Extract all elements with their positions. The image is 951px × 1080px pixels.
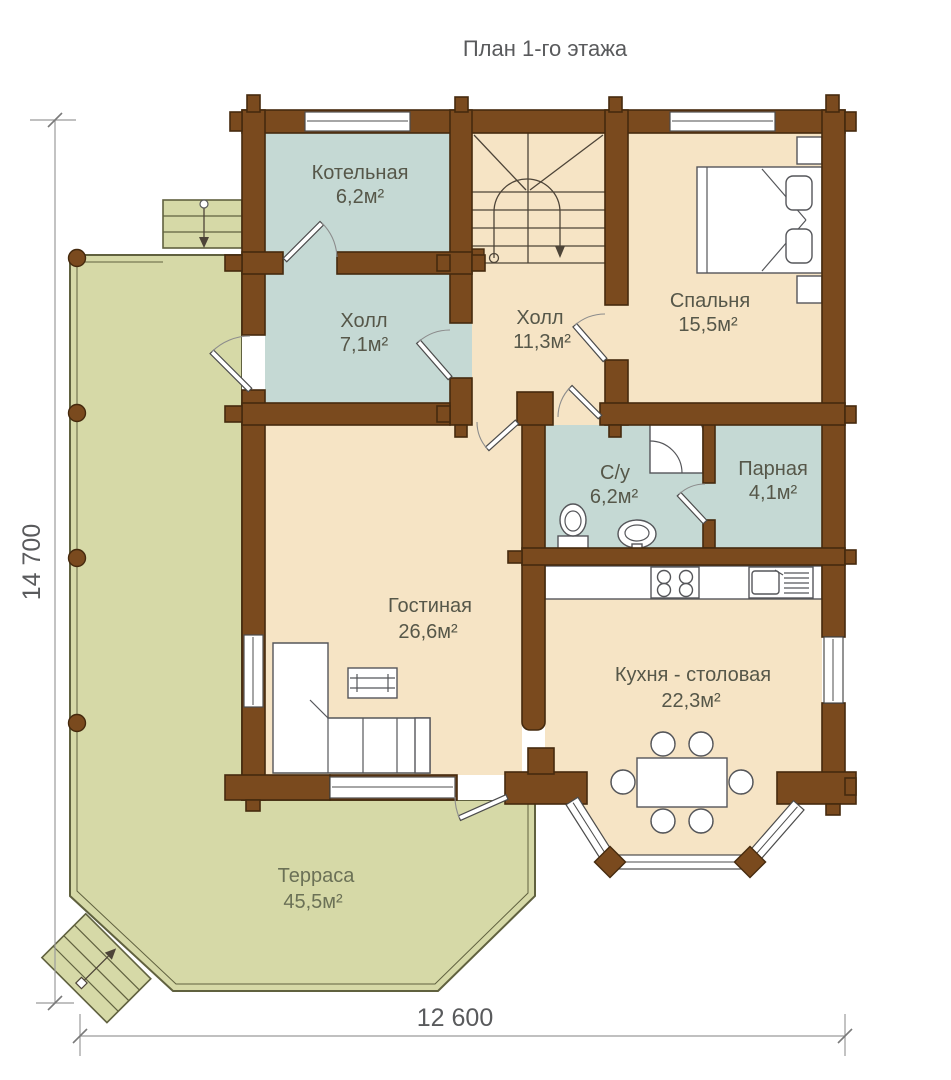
room-name: Терраса [278,865,356,887]
terrace-post [69,550,86,567]
wall-segment [703,520,715,548]
wall-segment [522,418,545,730]
log-stub [508,551,522,563]
log-stub [455,97,468,112]
toilet-tank [558,536,588,549]
floor-plan-drawing: Котельная 6,2м² Холл 7,1м² Холл 11,3м² С… [0,0,951,1080]
door-opening [703,483,715,520]
kitchen-sink-basin [752,571,779,594]
log-stub [437,255,450,271]
room-name: Холл [516,307,563,329]
log-stub [826,804,840,815]
dining-table [637,758,727,807]
room-area: 4,1м² [749,482,798,504]
wall-segment [242,403,450,425]
dimension-value-vertical: 14 700 [18,524,46,600]
log-stub [455,425,467,437]
room-name: Парная [738,458,808,480]
room-name: Гостиная [388,595,472,617]
room-name: Спальня [670,290,750,312]
shower-cabin [650,420,703,473]
kitchen-fixtures [545,566,822,599]
room-area: 15,5м² [678,314,738,336]
stove-burner [658,584,671,597]
log-stub [247,95,260,112]
log-stub [225,406,242,422]
room-hall-big-floor [472,133,605,403]
floor-plan-page: Котельная 6,2м² Холл 7,1м² Холл 11,3м² С… [0,0,951,1080]
room-name: Холл [340,310,387,332]
steps-upper [163,200,242,248]
room-name: С/у [600,462,630,484]
log-stub [845,112,856,131]
coffee-table [348,668,397,698]
log-stub [609,425,621,437]
door-opening [457,775,505,800]
room-area: 6,2м² [590,486,639,508]
wall-segment [242,252,283,274]
room-area: 26,6м² [398,621,458,643]
wall-segment [242,110,265,335]
steps-start-marker [200,200,208,208]
room-area: 22,3м² [661,690,721,712]
room-area: 11,3м² [513,331,571,353]
pillow [786,176,812,210]
log-stub [845,406,856,423]
wall-segment [337,252,472,274]
wall-segment [450,110,472,323]
room-name: Кухня - столовая [615,664,771,686]
nightstand [797,137,822,164]
door-opening [472,403,517,425]
log-stub [472,255,485,271]
door-opening [450,323,472,378]
wall-segment [703,418,715,483]
pillow [786,229,812,263]
wall-segment [450,378,472,425]
stove-burner [658,571,671,584]
wall-segment [522,548,845,565]
wall-segment [225,775,330,800]
terrace-post [69,405,86,422]
stove-burner [680,571,693,584]
room-area: 6,2м² [336,186,385,208]
log-stub [845,778,856,795]
log-stub [225,255,242,271]
door-opening [605,305,628,360]
terrace-post [69,715,86,732]
sofa-armrest [415,718,430,773]
room-name: Котельная [312,162,409,184]
log-stub [528,748,554,774]
wall-segment [600,403,845,425]
dimension-value-horizontal: 12 600 [417,1004,493,1032]
wall-segment [777,772,856,804]
log-stub [230,112,242,131]
log-stub [246,800,260,811]
stove-burner [680,584,693,597]
log-stub [609,97,622,112]
wall-segment [517,392,553,425]
terrace-post [69,250,86,267]
log-stub [845,550,856,564]
nightstand [797,276,822,303]
wall-segment [242,390,265,800]
room-area: 7,1м² [340,334,389,356]
wall-segment [605,110,628,305]
page-title: План 1-го этажа [463,36,628,61]
log-stub [437,406,450,422]
log-stub [826,95,839,112]
room-area: 45,5м² [283,891,343,913]
